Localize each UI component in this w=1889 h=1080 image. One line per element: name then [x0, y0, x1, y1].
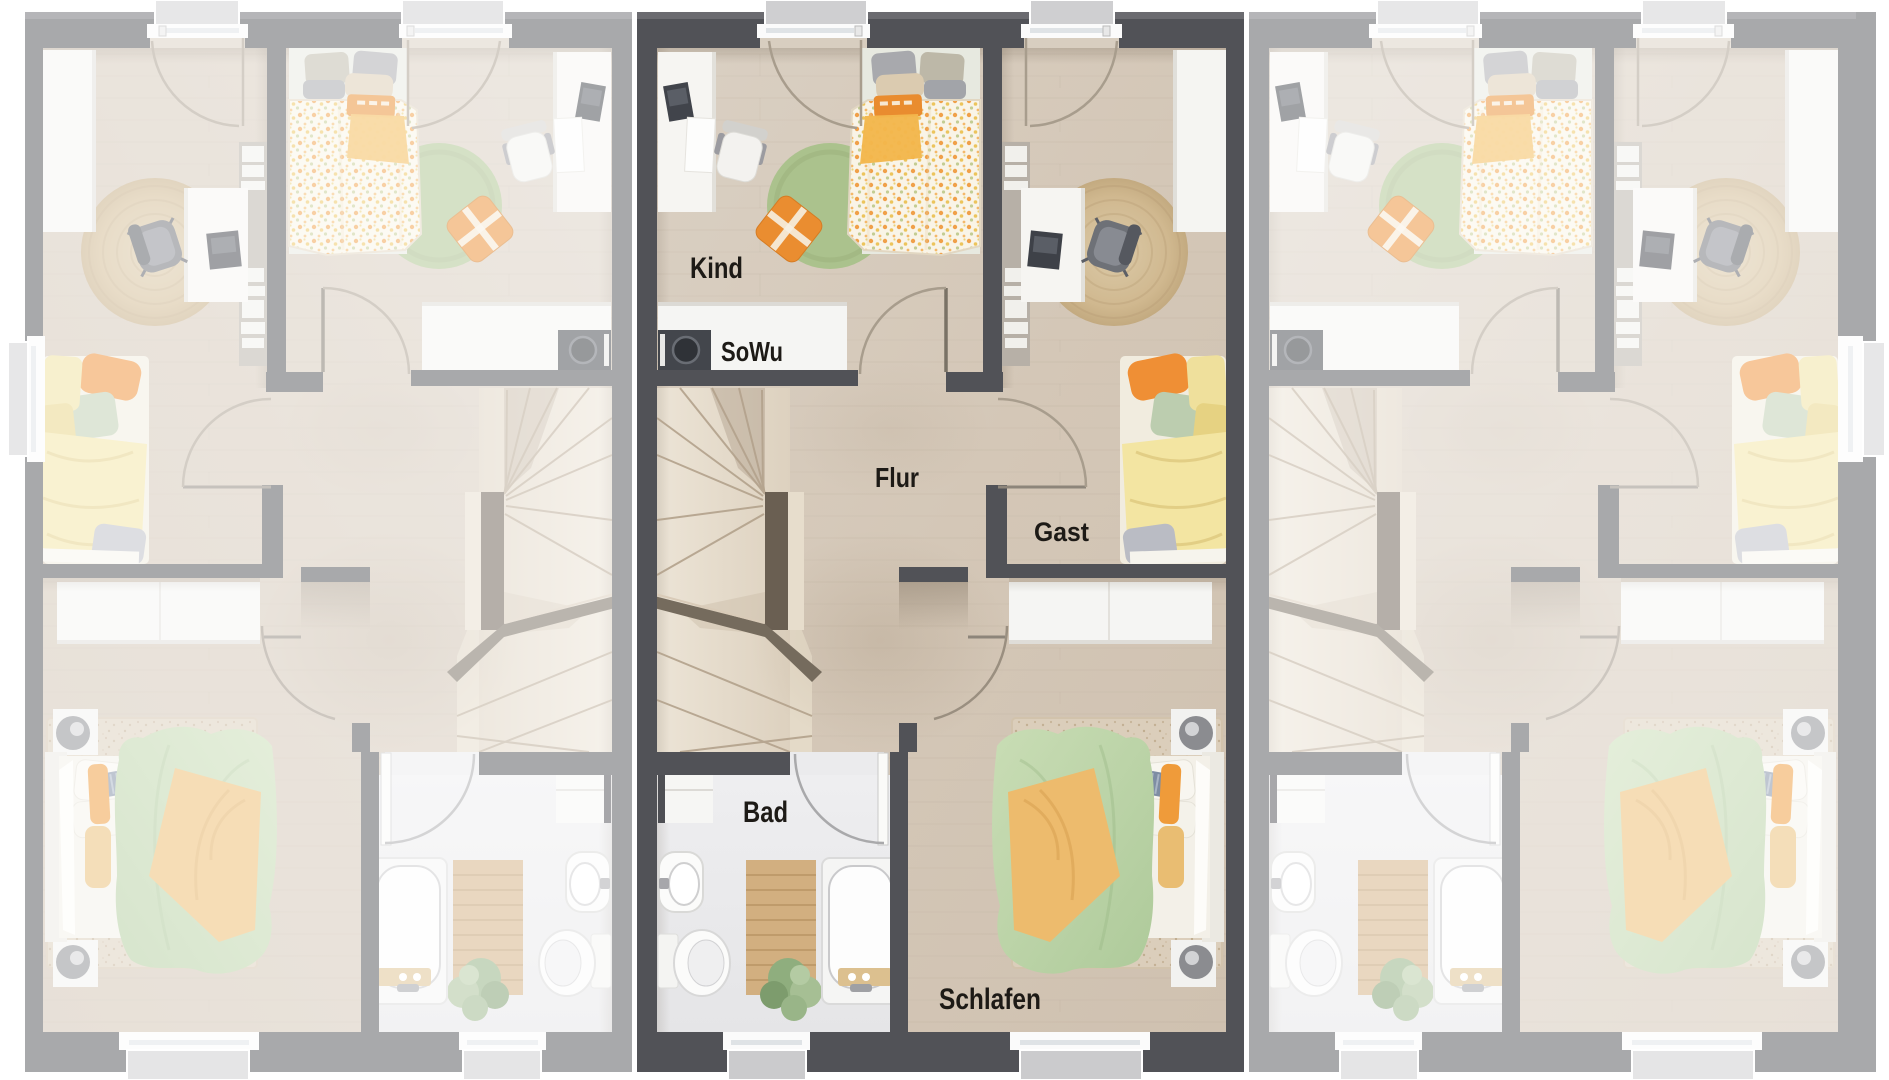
svg-text:Kind: Kind: [690, 252, 743, 285]
svg-text:Gast: Gast: [1034, 517, 1089, 547]
svg-text:SoWu: SoWu: [721, 336, 783, 367]
svg-text:Flur: Flur: [875, 462, 919, 493]
svg-text:Bad: Bad: [743, 796, 788, 829]
svg-text:Schlafen: Schlafen: [939, 983, 1041, 1016]
